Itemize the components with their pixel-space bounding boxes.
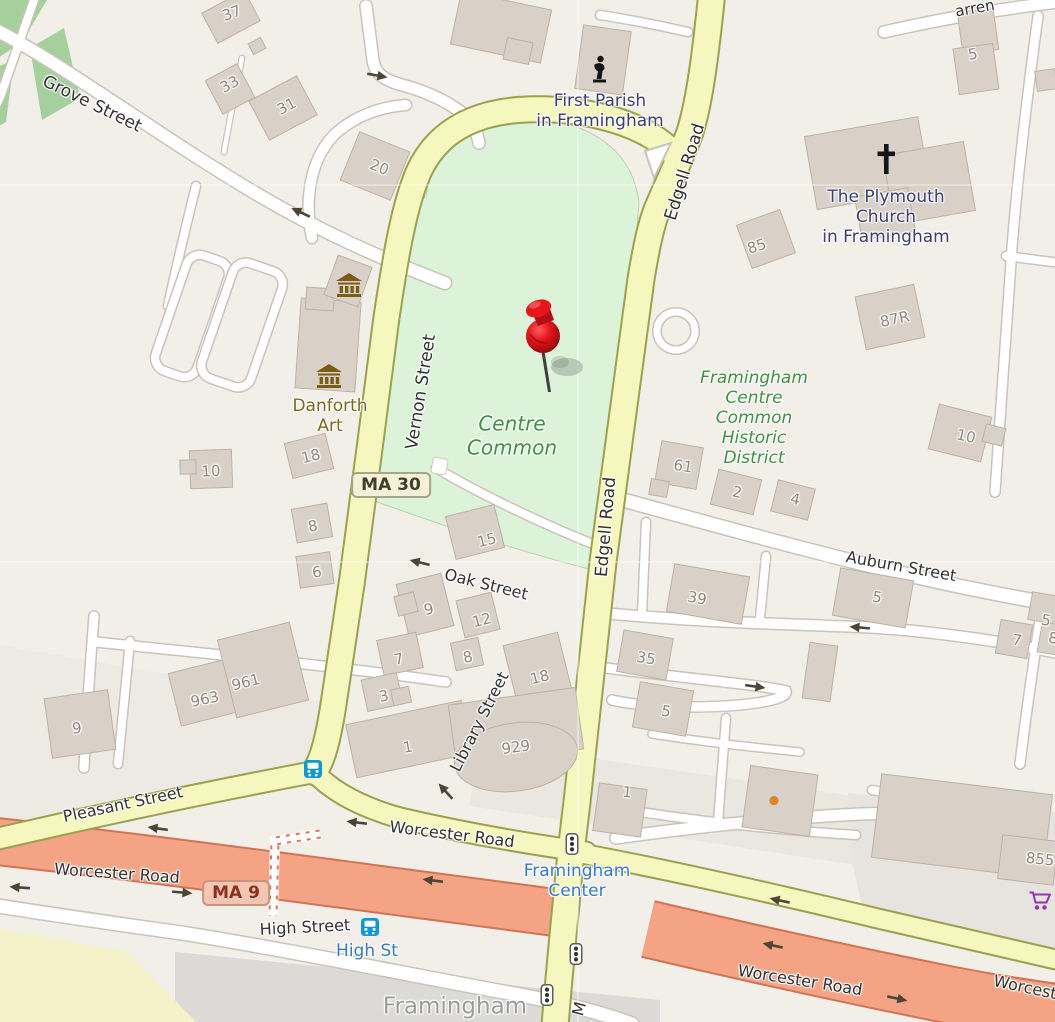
street-label: Auburn Street [844,548,957,586]
housenumber-label: 10 [955,426,977,447]
housenumber-label: 39 [686,589,708,610]
map-viewport[interactable]: Grove StreetVernon StreetEdgell RoadEdge… [0,0,1055,1022]
street-label: Worcester Road [736,962,863,1000]
housenumber-label: 855 [1025,850,1055,871]
bus-stop-icon [304,760,323,783]
oneway-arrow-icon [420,869,446,891]
housenumber-label: 9 [422,600,436,619]
poi-label-line: First Parish [536,91,663,111]
first-parish-label: First Parishin Framingham [536,91,663,131]
housenumber-label: 37 [220,2,244,25]
oneway-arrow-icon [766,888,793,912]
poi-label-line: Centre [700,388,808,408]
oneway-arrow-icon [883,987,910,1011]
housenumber-label: 85 [745,236,769,259]
oneway-arrow-icon [847,616,873,637]
ma9-shield: MA 9 [202,880,270,906]
street-label: Worcest [992,972,1055,1004]
housenumber-label: 61 [672,457,694,477]
oneway-arrow-icon [286,198,316,225]
housenumber-label: 4 [788,490,801,509]
poi-label-line: Framingham [524,861,631,881]
poi-label-line: Art [292,416,367,436]
poi-label-line: Danforth [292,396,367,416]
street-label: arren [954,0,996,21]
housenumber-label: 33 [217,73,242,98]
poi-label-line: Framingham [383,993,527,1020]
housenumber-label: 6 [311,564,323,583]
church-cross-icon [875,144,897,178]
oneway-arrow-icon [169,882,195,903]
housenumber-label: 12 [471,610,494,632]
poi-label-line: in Framingham [822,227,949,247]
housenumber-label: 1 [621,784,632,803]
poi-label-line: Common [467,436,557,460]
poi-label-line: District [700,448,808,468]
housenumber-label: 18 [529,667,552,689]
street-label: M [569,1000,591,1018]
housenumber-label: 18 [300,446,323,468]
street-label: Oak Street [442,566,529,605]
housenumber-label: 7 [392,650,405,669]
oneway-arrow-icon [406,550,434,574]
housenumber-label: 35 [635,649,657,669]
housenumber-label: 963 [189,688,221,711]
oneway-arrow-icon [145,817,171,839]
housenumber-label: 2 [730,483,743,502]
danforth-art-label: DanforthArt [292,396,367,436]
housenumber-label: 8 [461,648,474,667]
poi-dot-icon [768,792,780,811]
oneway-arrow-icon [759,933,786,957]
shopping-cart-icon [1028,890,1052,916]
housenumber-label: 8 [307,517,319,536]
framingham-center-label: FraminghamCenter [524,861,631,901]
bus-stop-icon [361,918,380,941]
street-label: Vernon Street [402,333,440,451]
traffic-signal-icon [566,833,579,859]
centre-common-label: CentreCommon [467,412,557,459]
housenumber-label: 3 [377,687,390,706]
poi-label-line: Centre [467,412,557,436]
oneway-arrow-icon [364,65,391,88]
housenumber-label: 1 [402,738,414,757]
housenumber-label: 10 [201,463,221,482]
oneway-arrow-icon [344,811,370,833]
museum-icon [316,364,342,392]
oneway-arrow-icon [7,877,32,898]
street-label: Worcester Road [54,860,181,888]
housenumber-label: 9 [71,720,82,739]
housenumber-label: 961 [230,671,262,695]
poi-label-line: Common [700,408,808,428]
housenumber-label: 20 [367,156,391,180]
framingham-city-label: Framingham [383,993,527,1020]
ma30-shield: MA 30 [351,472,431,498]
housenumber-label: 7 [1011,632,1023,651]
street-label: Library Street [447,669,514,775]
poi-label-line: in Framingham [536,111,663,131]
traffic-signal-icon [541,984,554,1010]
high-st-stop-label: High St [336,941,398,961]
housenumber-label: 5 [967,45,979,64]
dropped-pin-marker[interactable] [508,296,588,400]
street-label: Edgell Road [592,476,621,578]
memorial-icon [590,55,608,87]
oneway-arrow-icon [742,676,768,698]
plymouth-church-label: The PlymouthChurchin Framingham [822,187,949,247]
street-label: Grove Street [39,71,145,136]
housenumber-label: 5 [660,703,672,722]
poi-label-line: Church [822,207,949,227]
poi-label-line: The Plymouth [822,187,949,207]
poi-label-line: Center [524,881,631,901]
street-label: High Street [259,916,350,940]
oneway-arrow-icon [431,776,461,807]
poi-label-line: Historic [700,428,808,448]
poi-label-line: High St [336,941,398,961]
housenumber-label: 929 [501,737,532,759]
housenumber-label: 15 [476,530,499,552]
poi-label-line: Framingham [700,368,808,388]
traffic-signal-icon [570,943,583,969]
housenumber-label: 87R [879,308,912,331]
label-overlay: Grove StreetVernon StreetEdgell RoadEdge… [0,0,1055,1022]
housenumber-label: 8 [1047,630,1055,649]
historic-district-label: FraminghamCentreCommonHistoricDistrict [700,368,808,468]
housenumber-label: 5 [871,589,883,608]
street-label: Worcester Road [388,818,515,852]
museum-icon [336,273,362,301]
street-label: Edgell Road [661,121,709,223]
housenumber-label: 31 [274,95,299,120]
